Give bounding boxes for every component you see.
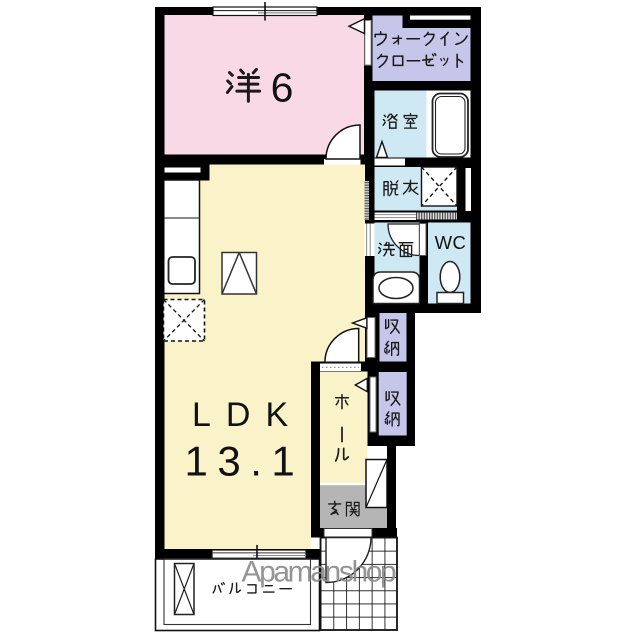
svg-text:WC: WC xyxy=(435,232,467,253)
svg-text:LDK: LDK xyxy=(192,396,303,434)
svg-text:Apamanshop: Apamanshop xyxy=(242,556,397,589)
svg-text:13.1: 13.1 xyxy=(185,438,305,485)
svg-text:6: 6 xyxy=(271,65,294,111)
